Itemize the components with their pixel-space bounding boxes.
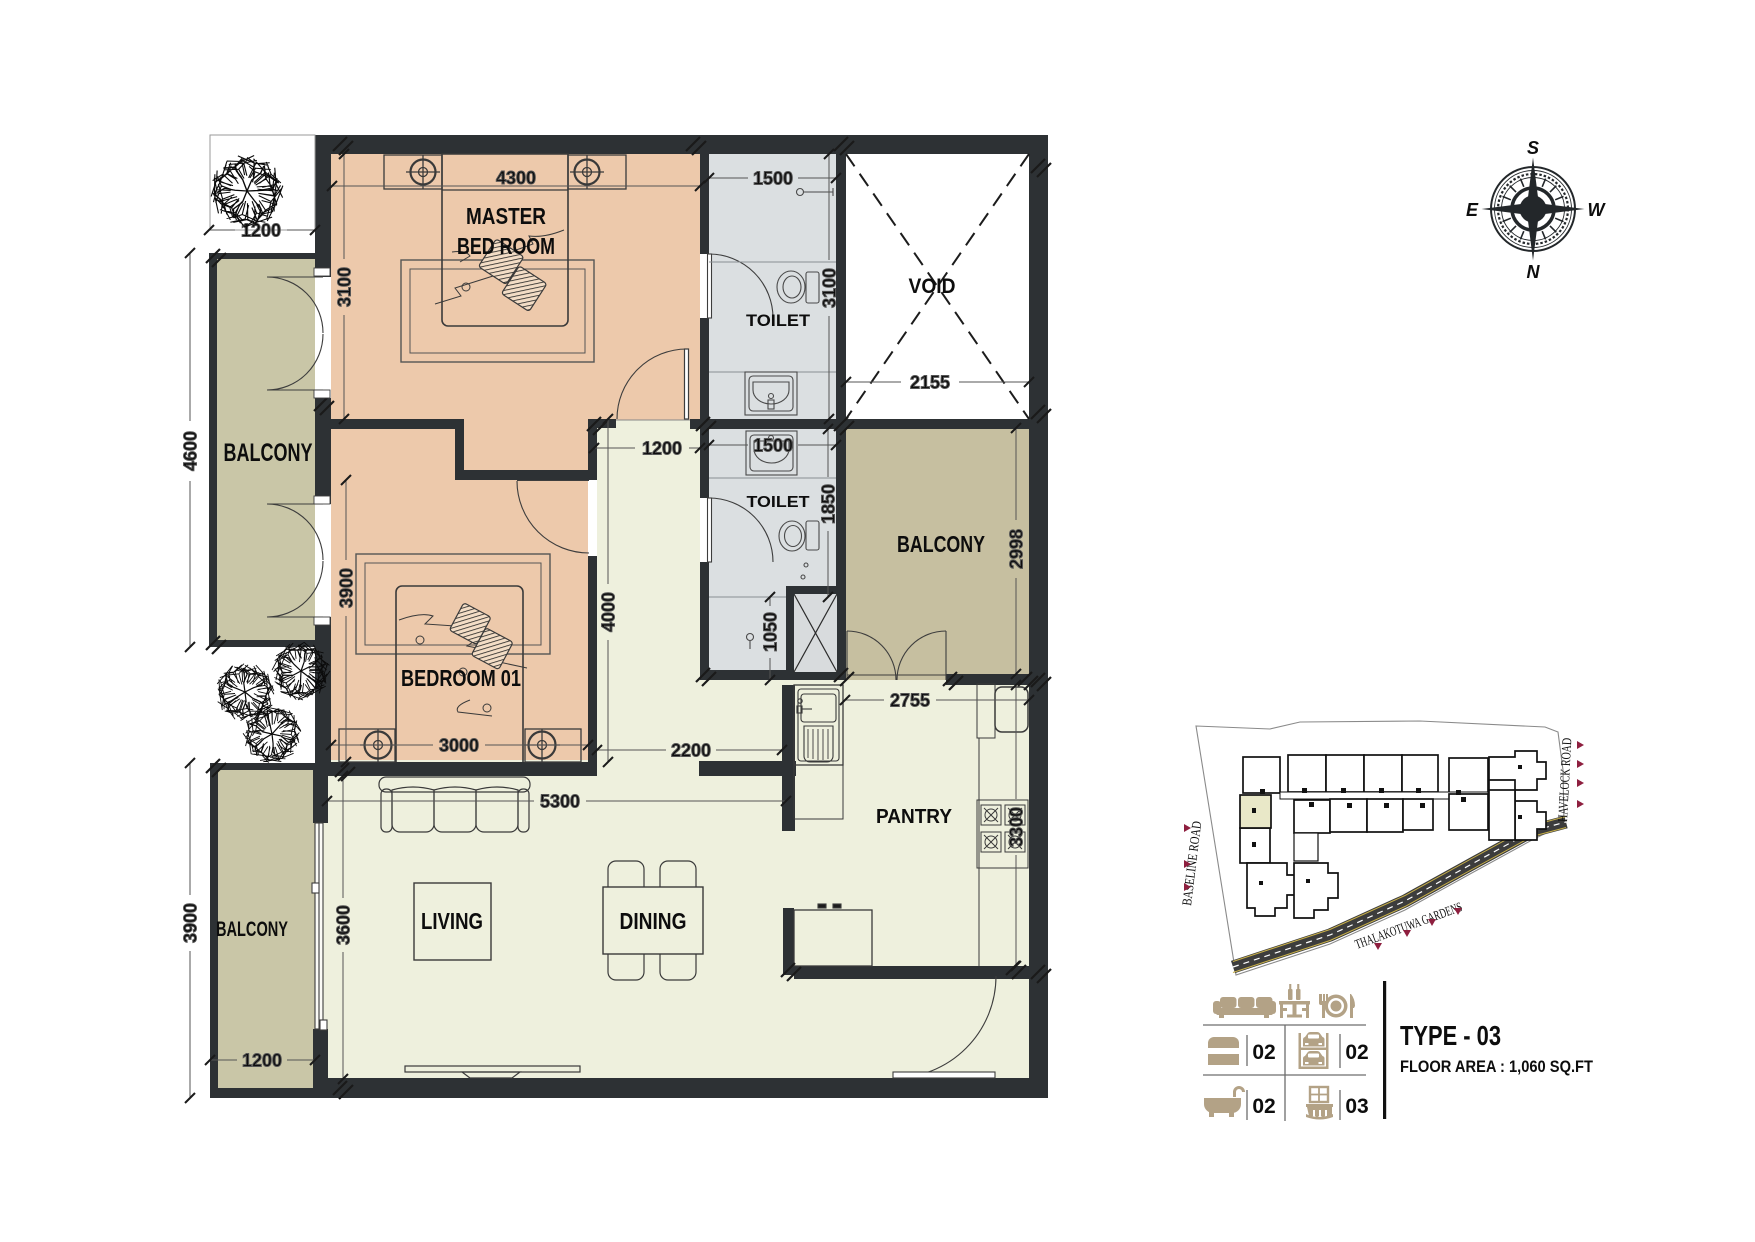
svg-text:1500: 1500 — [753, 436, 793, 456]
svg-text:4300: 4300 — [496, 168, 536, 188]
svg-text:02: 02 — [1252, 1041, 1275, 1064]
svg-text:3600: 3600 — [334, 905, 354, 945]
svg-text:W: W — [1588, 200, 1607, 220]
svg-text:BALCONY: BALCONY — [897, 531, 985, 557]
svg-text:3100: 3100 — [335, 267, 355, 307]
svg-text:E: E — [1466, 200, 1479, 220]
svg-text:MASTER: MASTER — [466, 203, 546, 229]
svg-text:TOILET: TOILET — [746, 311, 811, 330]
svg-text:03: 03 — [1345, 1095, 1368, 1118]
svg-text:BALCONY: BALCONY — [216, 918, 288, 941]
svg-text:1500: 1500 — [753, 169, 793, 189]
svg-text:2200: 2200 — [671, 741, 711, 761]
svg-text:FLOOR AREA : 1,060 SQ.FT: FLOOR AREA : 1,060 SQ.FT — [1400, 1058, 1593, 1076]
svg-text:4600: 4600 — [181, 431, 201, 471]
svg-text:02: 02 — [1345, 1041, 1368, 1064]
svg-text:3300: 3300 — [1007, 807, 1027, 847]
svg-text:TYPE - 03: TYPE - 03 — [1400, 1020, 1501, 1051]
svg-text:1050: 1050 — [761, 612, 781, 652]
svg-text:1200: 1200 — [242, 1051, 282, 1071]
svg-text:BED ROOM: BED ROOM — [457, 233, 555, 259]
svg-text:LIVING: LIVING — [421, 908, 483, 934]
svg-text:3900: 3900 — [337, 568, 357, 608]
svg-text:3100: 3100 — [820, 268, 840, 308]
svg-text:BALCONY: BALCONY — [224, 439, 313, 467]
svg-text:DINING: DINING — [620, 908, 687, 934]
svg-text:5300: 5300 — [540, 792, 580, 812]
svg-text:PANTRY: PANTRY — [876, 806, 953, 828]
svg-text:TOILET: TOILET — [747, 494, 810, 511]
svg-text:02: 02 — [1252, 1095, 1275, 1118]
svg-text:N: N — [1527, 262, 1541, 282]
svg-text:1850: 1850 — [819, 484, 839, 524]
svg-text:2998: 2998 — [1007, 529, 1027, 569]
svg-text:BEDROOM 01: BEDROOM 01 — [401, 665, 521, 691]
svg-text:1200: 1200 — [241, 221, 281, 241]
svg-text:2755: 2755 — [890, 691, 930, 711]
svg-text:4000: 4000 — [599, 592, 619, 632]
svg-text:VOID: VOID — [909, 275, 956, 298]
svg-text:3900: 3900 — [181, 903, 201, 943]
svg-text:2155: 2155 — [910, 373, 950, 393]
svg-text:1200: 1200 — [642, 439, 682, 459]
svg-text:S: S — [1527, 138, 1539, 158]
svg-text:3000: 3000 — [439, 736, 479, 756]
